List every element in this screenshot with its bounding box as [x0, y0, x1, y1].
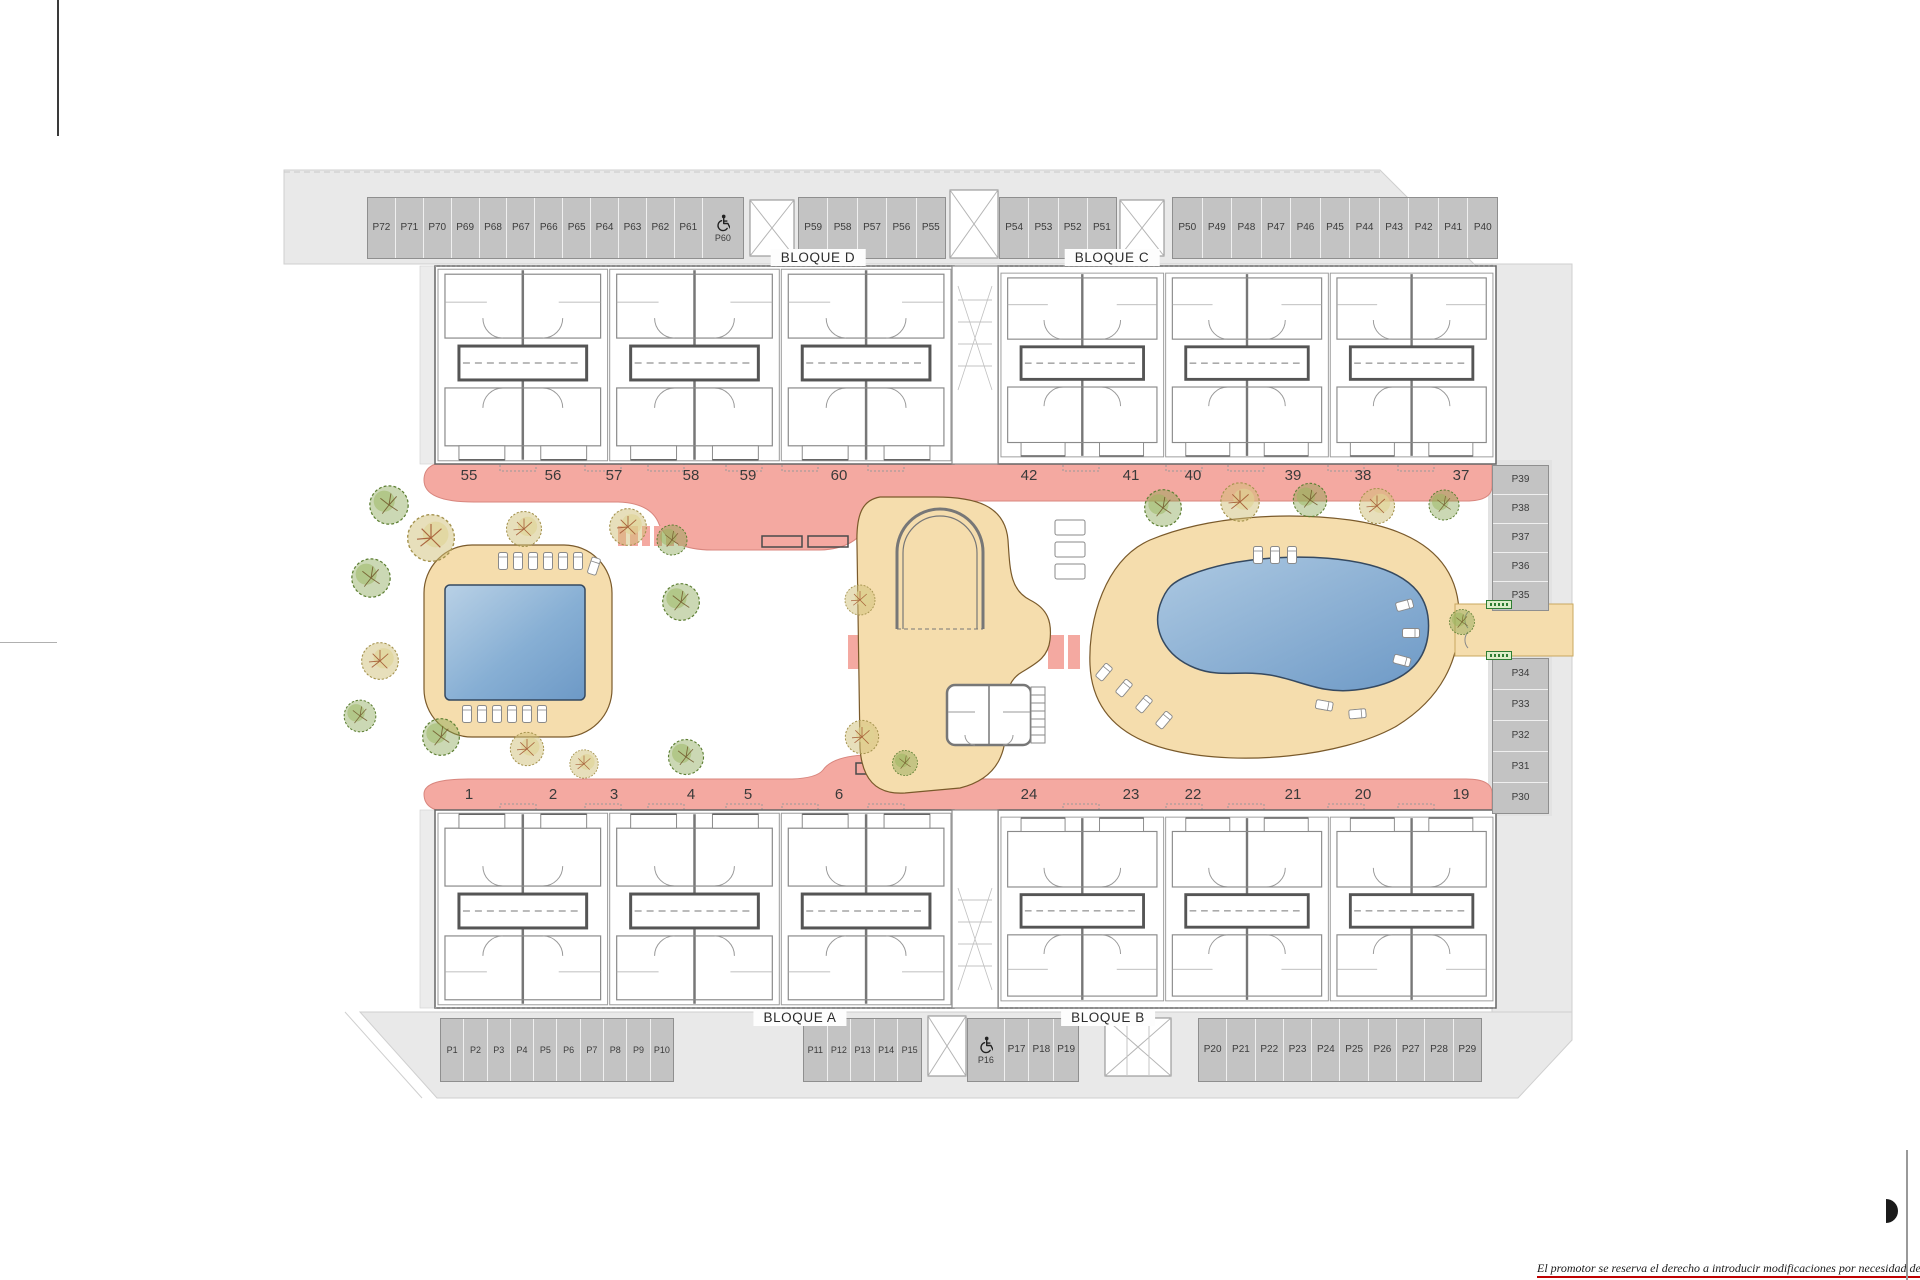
parking-stall: P27 [1396, 1019, 1424, 1081]
wheelchair-icon [716, 214, 730, 233]
parking-stall-label: P23 [1289, 1045, 1307, 1055]
parking-stall-label: P56 [893, 223, 911, 233]
parking-stall-label: P34 [1512, 669, 1530, 679]
parking-stall-label: P39 [1512, 475, 1530, 485]
unit-number: 56 [545, 467, 562, 484]
parking-stall-label: P14 [878, 1046, 894, 1055]
parking-stall-label: P25 [1345, 1045, 1363, 1055]
parking-stall: P30 [1493, 782, 1548, 813]
parking-stall-label: P10 [654, 1046, 670, 1055]
parking-stall-label: P36 [1512, 562, 1530, 572]
unit-number: 22 [1185, 786, 1202, 803]
parking-stall: P13 [850, 1019, 874, 1081]
unit-number: 20 [1355, 786, 1372, 803]
parking-stall: P33 [1493, 689, 1548, 720]
parking-stall: P71 [395, 198, 423, 258]
parking-stall-label: P67 [512, 223, 530, 233]
parking-stall-label: P35 [1512, 591, 1530, 601]
parking-stall-label: P15 [902, 1046, 918, 1055]
parking-stall: P20 [1199, 1019, 1226, 1081]
benches-path [1055, 520, 1085, 579]
parking-group-b4: P20P21P22P23P24P25P26P27P28P29 [1198, 1018, 1482, 1082]
parking-stall: P42 [1408, 198, 1438, 258]
parking-stall: P53 [1028, 198, 1057, 258]
parking-stall-label: P59 [804, 223, 822, 233]
parking-stall: P65 [562, 198, 590, 258]
unit-number: 60 [831, 467, 848, 484]
services-building [947, 685, 1045, 745]
parking-stall: P44 [1349, 198, 1379, 258]
parking-stall-label: P27 [1402, 1045, 1420, 1055]
parking-stall-label: P9 [633, 1046, 644, 1055]
parking-stall: P62 [646, 198, 674, 258]
parking-stall: P45 [1320, 198, 1350, 258]
parking-stall-label: P58 [834, 223, 852, 233]
unit-number: 38 [1355, 467, 1372, 484]
parking-stall: P17 [1004, 1019, 1029, 1081]
parking-stall: P48 [1231, 198, 1261, 258]
parking-stall: P54 [1000, 198, 1028, 258]
parking-stall: P3 [487, 1019, 510, 1081]
parking-stall-label: P22 [1260, 1045, 1278, 1055]
parking-stall-label: P44 [1356, 223, 1374, 233]
unit-number: 19 [1453, 786, 1470, 803]
parking-stall-label: P16 [978, 1056, 994, 1065]
parking-stall: P72 [368, 198, 395, 258]
parking-group-r1: P39P38P37P36P35 [1492, 465, 1549, 611]
parking-stall: P50 [1173, 198, 1202, 258]
parking-stall: P23 [1283, 1019, 1311, 1081]
parking-stall-label: P30 [1512, 793, 1530, 803]
pergola-grid [1031, 687, 1045, 743]
label-bloque-c: BLOQUE C [1065, 249, 1160, 266]
parking-stall-label: P20 [1204, 1045, 1222, 1055]
parking-stall: P22 [1255, 1019, 1283, 1081]
parking-stall-label: P60 [715, 234, 731, 243]
parking-stall-label: P32 [1512, 731, 1530, 741]
red-underline [1537, 1276, 1920, 1278]
parking-stall-label: P3 [493, 1046, 504, 1055]
parking-group-t1: P72P71P70P69P68P67P66P65P64P63P62P61P60 [367, 197, 744, 259]
parking-stall-label: P54 [1005, 223, 1023, 233]
parking-stall: P21 [1226, 1019, 1254, 1081]
parking-stall-label: P6 [563, 1046, 574, 1055]
parking-stall-label: P19 [1057, 1045, 1075, 1055]
building-bloque-c [998, 266, 1496, 464]
building-bloque-d [435, 266, 954, 464]
parking-stall-label: P18 [1032, 1045, 1050, 1055]
parking-stall-label: P57 [863, 223, 881, 233]
parking-stall: P64 [590, 198, 618, 258]
parking-stall-label: P62 [651, 223, 669, 233]
parking-stall: P37 [1493, 523, 1548, 552]
parking-group-b2: P11P12P13P14P15 [803, 1018, 922, 1082]
parking-stall-label: P43 [1385, 223, 1403, 233]
parking-stall: P39 [1493, 466, 1548, 494]
parking-stall-label: P68 [484, 223, 502, 233]
label-bloque-b: BLOQUE B [1061, 1009, 1155, 1026]
label-bloque-a: BLOQUE A [753, 1009, 846, 1026]
parking-stall-label: P33 [1512, 700, 1530, 710]
frame-line-right [1906, 1150, 1908, 1280]
parking-stall-label: P65 [568, 223, 586, 233]
parking-stall: P12 [827, 1019, 851, 1081]
parking-stall-label: P45 [1326, 223, 1344, 233]
parking-stall-label: P29 [1458, 1045, 1476, 1055]
parking-stall: P63 [618, 198, 646, 258]
parking-stall-label: P61 [679, 223, 697, 233]
site-plan-drawing [0, 0, 1920, 1280]
parking-stall: P32 [1493, 720, 1548, 751]
parking-stall: P66 [534, 198, 562, 258]
parking-stall: P28 [1424, 1019, 1452, 1081]
parking-stall: P69 [451, 198, 479, 258]
building-bloque-b [998, 810, 1496, 1008]
parking-stall: P60 [702, 198, 743, 258]
parking-stall-label: P52 [1064, 223, 1082, 233]
parking-stall: P56 [886, 198, 915, 258]
disclaimer-text: El promotor se reserva el derecho a intr… [1537, 1261, 1920, 1276]
parking-stall: P70 [423, 198, 451, 258]
right-entrance [1455, 604, 1573, 656]
parking-stall-label: P42 [1415, 223, 1433, 233]
deck-kidney [1090, 516, 1459, 758]
parking-stall: P2 [463, 1019, 486, 1081]
parking-stall-label: P17 [1008, 1045, 1026, 1055]
unit-number: 1 [465, 786, 473, 803]
parking-stall-label: P46 [1297, 223, 1315, 233]
parking-stall-label: P7 [586, 1046, 597, 1055]
parking-stall: P36 [1493, 552, 1548, 581]
parking-stall-label: P24 [1317, 1045, 1335, 1055]
parking-stall: P14 [874, 1019, 898, 1081]
unit-number: 58 [683, 467, 700, 484]
parking-stall-label: P8 [610, 1046, 621, 1055]
parking-stall: P11 [804, 1019, 827, 1081]
parking-stall-label: P48 [1237, 223, 1255, 233]
parking-stall: P8 [603, 1019, 626, 1081]
parking-group-b1: P1P2P3P4P5P6P7P8P9P10 [440, 1018, 674, 1082]
unit-number: 40 [1185, 467, 1202, 484]
parking-stall: P38 [1493, 494, 1548, 523]
parking-stall-label: P21 [1232, 1045, 1250, 1055]
parking-stall-label: P38 [1512, 504, 1530, 514]
parking-stall-label: P49 [1208, 223, 1226, 233]
deck-left [424, 545, 612, 737]
wheelchair-icon [979, 1036, 993, 1055]
parking-stall: P16 [968, 1019, 1004, 1081]
unit-number: 39 [1285, 467, 1302, 484]
parking-stall: P6 [556, 1019, 579, 1081]
parking-stall: P43 [1379, 198, 1409, 258]
unit-number: 21 [1285, 786, 1302, 803]
parking-stall: P31 [1493, 751, 1548, 782]
parking-stall: P61 [674, 198, 702, 258]
parking-stall: P9 [626, 1019, 649, 1081]
parking-stall-label: P41 [1444, 223, 1462, 233]
parking-stall-label: P72 [373, 223, 391, 233]
parking-stall-label: P31 [1512, 762, 1530, 772]
frame-tick-left [0, 642, 57, 643]
parking-stall: P55 [916, 198, 945, 258]
parking-stall: P26 [1368, 1019, 1396, 1081]
parking-stall: P15 [897, 1019, 921, 1081]
parking-group-r2: P34P33P32P31P30 [1492, 658, 1549, 814]
parking-stall-label: P1 [447, 1046, 458, 1055]
unit-number: 41 [1123, 467, 1140, 484]
parking-stall-label: P40 [1474, 223, 1492, 233]
parking-stall-label: P55 [922, 223, 940, 233]
unit-number: 55 [461, 467, 478, 484]
parking-stall: P4 [510, 1019, 533, 1081]
site-plan-canvas: P72P71P70P69P68P67P66P65P64P63P62P61P60P… [0, 0, 1920, 1280]
parking-stall-label: P5 [540, 1046, 551, 1055]
unit-number: 57 [606, 467, 623, 484]
parking-stall: P25 [1339, 1019, 1367, 1081]
registration-half-disc [1886, 1199, 1898, 1223]
parking-stall-label: P70 [428, 223, 446, 233]
parking-stall-label: P37 [1512, 533, 1530, 543]
unit-number: 24 [1021, 786, 1038, 803]
unit-number: 4 [687, 786, 695, 803]
unit-number: 6 [835, 786, 843, 803]
parking-stall: P47 [1261, 198, 1291, 258]
parking-stall: P68 [479, 198, 507, 258]
parking-stall-label: P11 [808, 1046, 823, 1055]
unit-number: 2 [549, 786, 557, 803]
unit-number: 23 [1123, 786, 1140, 803]
parking-stall-label: P63 [624, 223, 642, 233]
parking-group-t4: P50P49P48P47P46P45P44P43P42P41P40 [1172, 197, 1498, 259]
parking-stall-label: P69 [456, 223, 474, 233]
parking-stall: P67 [506, 198, 534, 258]
parking-stall: P7 [580, 1019, 603, 1081]
parking-stall: P1 [441, 1019, 463, 1081]
parking-stall-label: P13 [854, 1046, 870, 1055]
parking-stall: P46 [1290, 198, 1320, 258]
parking-stall-label: P64 [596, 223, 614, 233]
parking-stall: P24 [1311, 1019, 1339, 1081]
parking-stall: P5 [533, 1019, 556, 1081]
parking-stall-label: P53 [1034, 223, 1052, 233]
parking-stall-label: P47 [1267, 223, 1285, 233]
parking-stall: P10 [650, 1019, 673, 1081]
parking-stall-label: P26 [1374, 1045, 1392, 1055]
frame-tick-top-left [57, 0, 59, 136]
palm-tree [1450, 610, 1475, 635]
parking-stall-label: P66 [540, 223, 558, 233]
parking-stall: P40 [1467, 198, 1497, 258]
parking-stall: P29 [1453, 1019, 1481, 1081]
parking-stall-label: P12 [831, 1046, 847, 1055]
parking-stall-label: P50 [1178, 223, 1196, 233]
unit-number: 5 [744, 786, 752, 803]
pool-rectangular [445, 585, 585, 700]
building-bloque-a [435, 810, 954, 1008]
parking-stall-label: P28 [1430, 1045, 1448, 1055]
exit-sign-icon [1486, 651, 1512, 660]
parking-group-b3: P16P17P18P19 [967, 1018, 1079, 1082]
label-bloque-d: BLOQUE D [771, 249, 866, 266]
parking-stall-label: P51 [1093, 223, 1111, 233]
unit-number: 37 [1453, 467, 1470, 484]
parking-stall: P49 [1202, 198, 1232, 258]
unit-number: 42 [1021, 467, 1038, 484]
unit-number: 59 [740, 467, 757, 484]
exit-sign-icon [1486, 600, 1512, 609]
parking-stall: P41 [1438, 198, 1468, 258]
parking-stall: P19 [1053, 1019, 1078, 1081]
parking-stall: P18 [1028, 1019, 1053, 1081]
parking-stall-label: P71 [400, 223, 418, 233]
parking-stall: P34 [1493, 659, 1548, 689]
unit-number: 3 [610, 786, 618, 803]
parking-stall-label: P2 [470, 1046, 481, 1055]
parking-stall-label: P4 [517, 1046, 528, 1055]
